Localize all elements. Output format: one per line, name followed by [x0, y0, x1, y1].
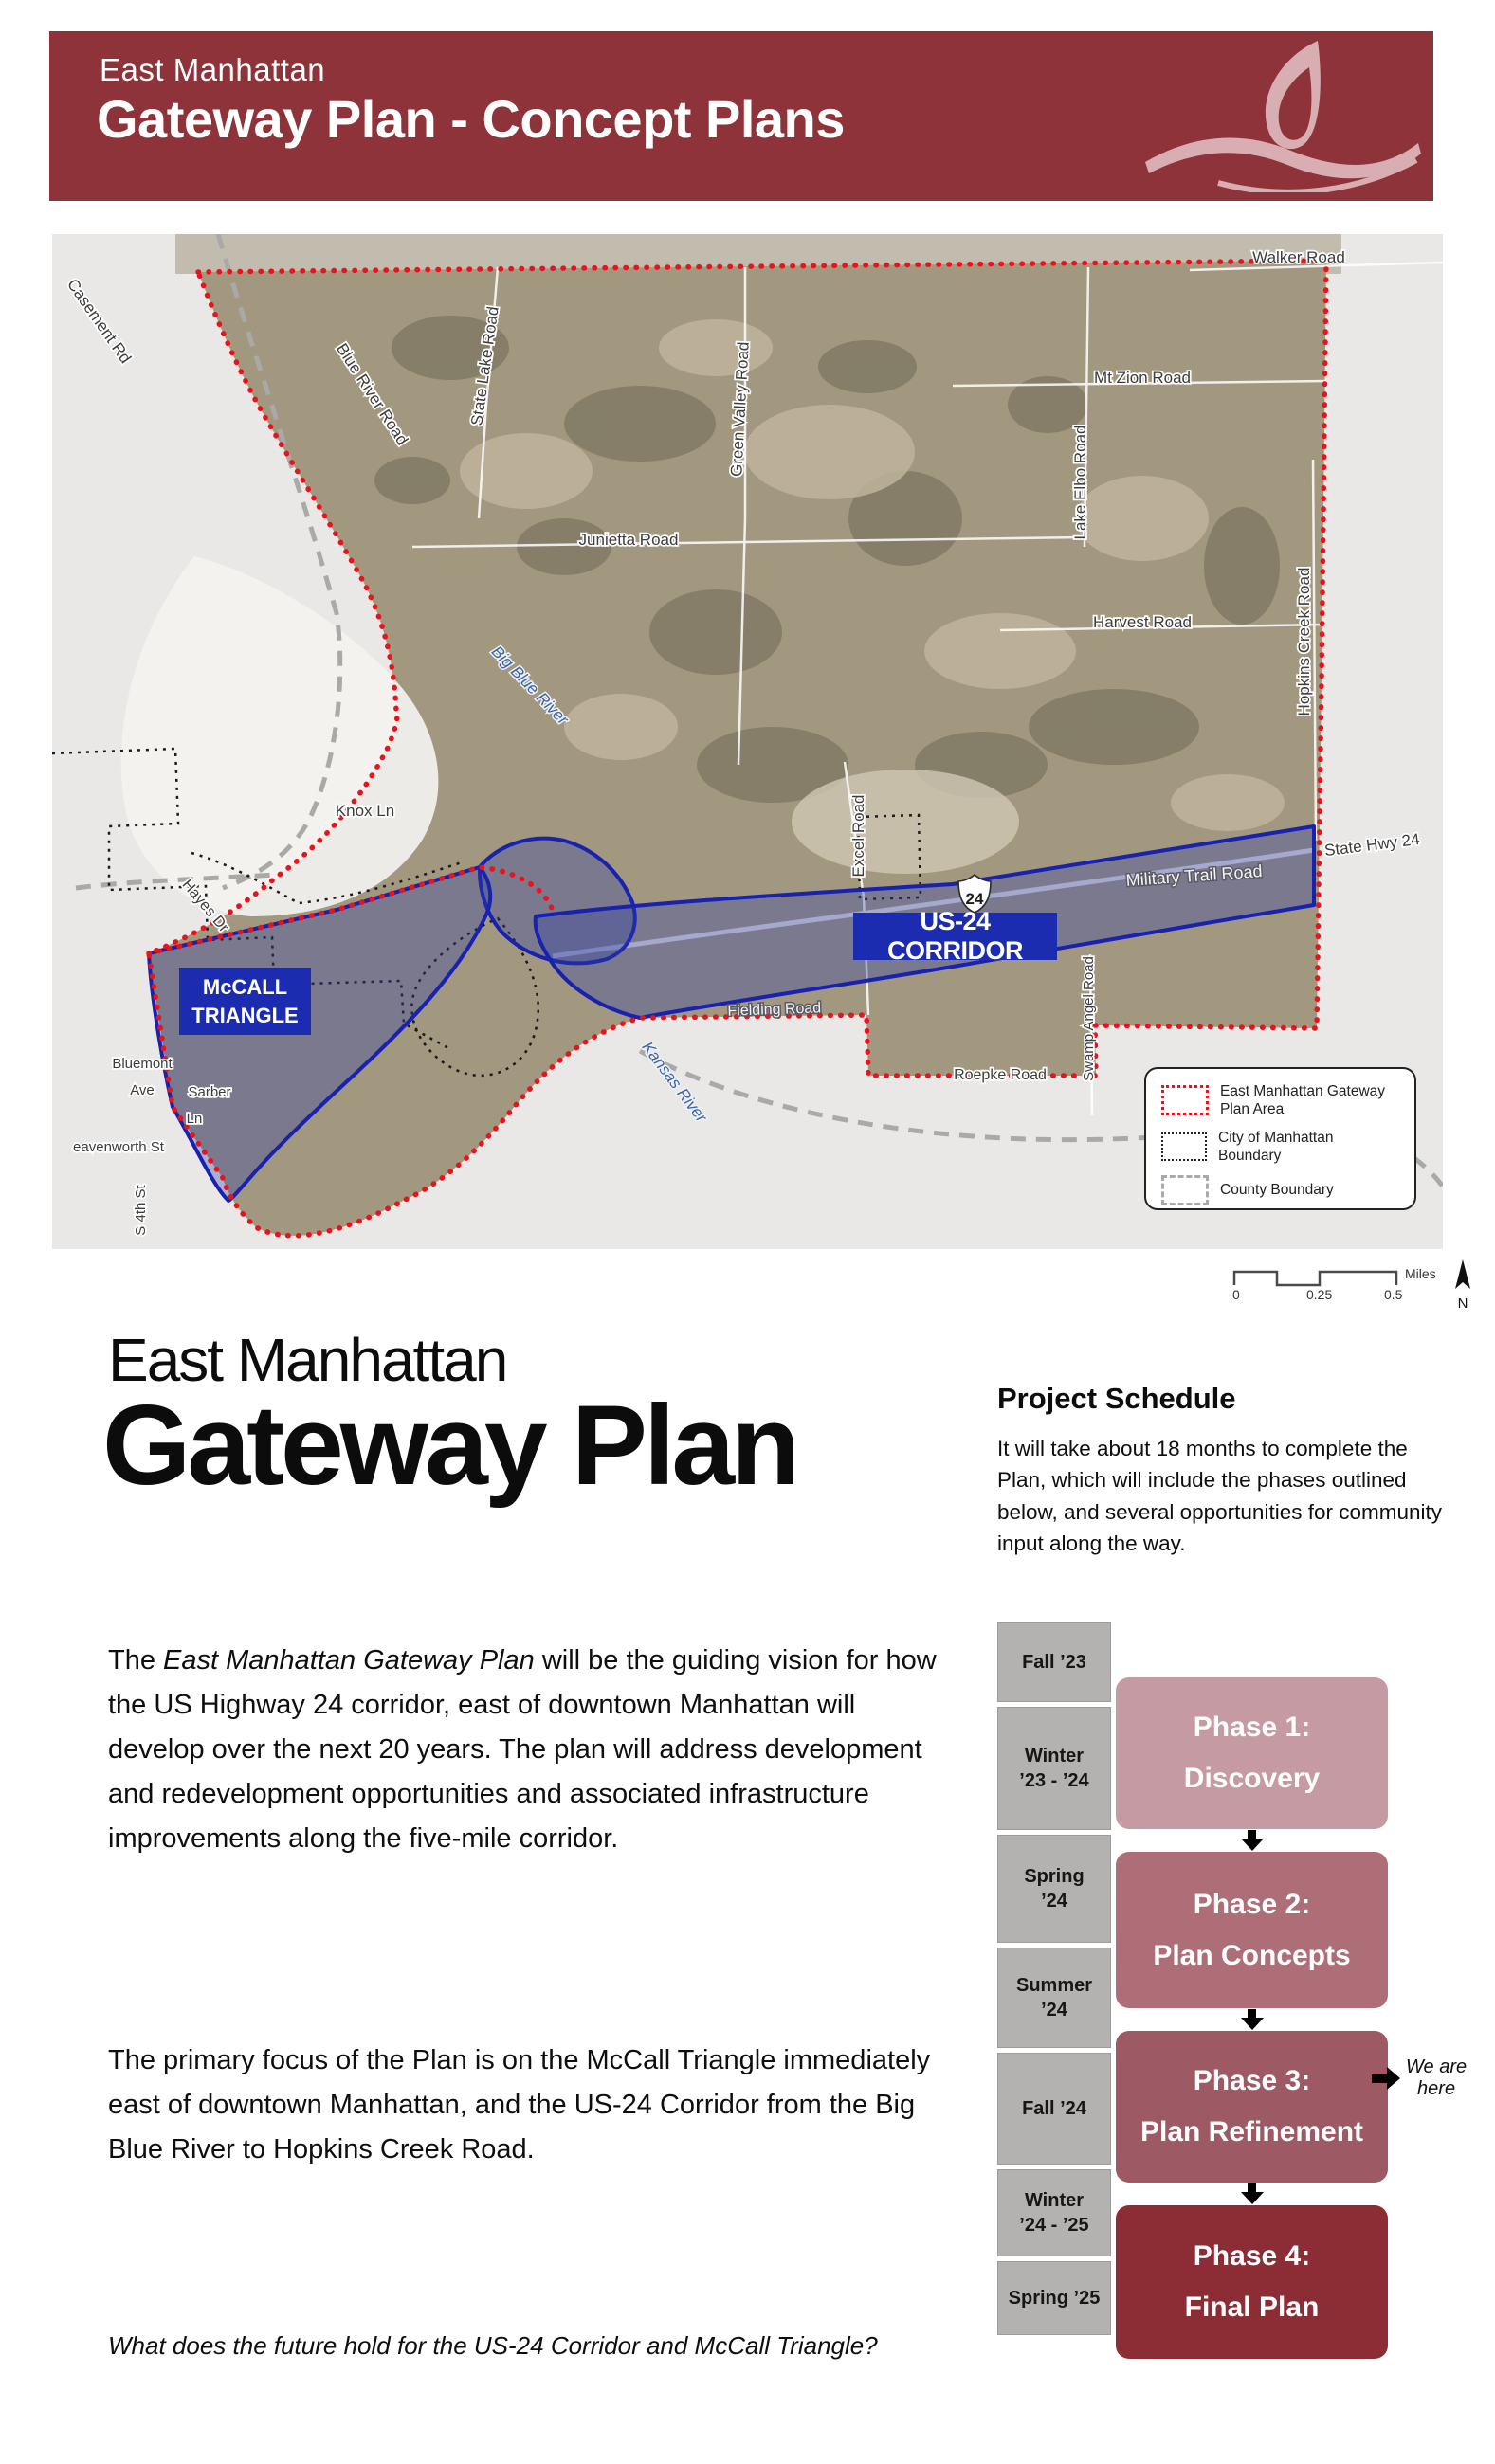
map-label: Excel Road	[849, 795, 867, 878]
schedule-phase-column: Phase 1:DiscoveryPhase 2:Plan ConceptsPh…	[1116, 1677, 1388, 2359]
map-label: Junietta Road	[579, 531, 679, 549]
phase-down-arrow-icon	[1241, 2183, 1264, 2205]
us24-corridor-badge: US-24 CORRIDOR	[853, 913, 1057, 960]
north-arrow-icon: N	[1449, 1259, 1477, 1312]
article-paragraph-2: The primary focus of the Plan is on the …	[108, 2038, 946, 2172]
article-question: What does the future hold for the US-24 …	[108, 2331, 961, 2361]
phase-subtitle: Discovery	[1184, 1753, 1320, 1804]
p1-plan-name: East Manhattan Gateway Plan	[163, 1645, 535, 1676]
article-title-line2: Gateway Plan	[102, 1380, 796, 1511]
map-label: eavenworth St	[73, 1139, 165, 1155]
phase-title: Phase 2:	[1194, 1879, 1310, 1930]
legend-swatch-red-icon	[1161, 1085, 1209, 1115]
schedule-season: Spring ’25	[997, 2261, 1111, 2335]
phase-down-arrow-icon	[1241, 2008, 1264, 2031]
scalebar-tick: 0.25	[1306, 1287, 1332, 1302]
map-label: Knox Ln	[336, 802, 394, 820]
svg-text:24: 24	[966, 890, 984, 908]
schedule-intro: It will take about 18 months to complete…	[997, 1433, 1447, 1559]
legend-swatch-gray-icon	[1161, 1175, 1209, 1205]
map-label: Swamp Angel Road	[1081, 956, 1097, 1081]
map-label: Hopkins Creek Road	[1295, 568, 1313, 716]
map-label: Sarber	[188, 1084, 230, 1100]
poster-page: East Manhattan Gateway Plan - Concept Pl…	[0, 0, 1495, 2464]
phase-subtitle: Plan Refinement	[1140, 2107, 1363, 2158]
schedule-season: Winter ’24 - ’25	[997, 2169, 1111, 2256]
schedule-season: Summer ’24	[997, 1948, 1111, 2048]
north-label: N	[1449, 1295, 1477, 1312]
legend-item: County Boundary	[1161, 1175, 1403, 1205]
we-are-here-arrow-icon	[1372, 2067, 1400, 2090]
schedule-phase: Phase 3:Plan Refinement	[1116, 2031, 1388, 2183]
map-label: Roepke Road	[954, 1067, 1047, 1083]
we-are-here-label: We are here	[1406, 2056, 1467, 2100]
gateway-plan-map[interactable]: 24 Casement RdBlue River RoadState Lake …	[52, 234, 1443, 1249]
schedule-heading: Project Schedule	[997, 1382, 1236, 1416]
schedule-season: Spring ’24	[997, 1835, 1111, 1943]
schedule-season: Winter ’23 - ’24	[997, 1707, 1111, 1830]
p1-pre: The	[108, 1645, 163, 1676]
map-scalebar: 00.250.5 Miles N	[1232, 1262, 1460, 1321]
map-label: Lake Elbo Road	[1071, 426, 1089, 540]
legend-item: City of ManhattanBoundary	[1161, 1129, 1403, 1166]
prairie-leaf-logo-icon	[1138, 39, 1422, 192]
scalebar-tick: 0.5	[1384, 1287, 1402, 1302]
phase-title: Phase 4:	[1194, 2231, 1310, 2282]
schedule-phase: Phase 2:Plan Concepts	[1116, 1852, 1388, 2008]
map-label: Mt Zion Road	[1094, 369, 1191, 387]
schedule-season: Fall ’24	[997, 2053, 1111, 2165]
legend-label: City of ManhattanBoundary	[1218, 1129, 1333, 1166]
map-label: Bluemont	[112, 1056, 173, 1072]
header-banner: East Manhattan Gateway Plan - Concept Pl…	[49, 31, 1433, 201]
schedule-phase: Phase 1:Discovery	[1116, 1677, 1388, 1829]
map-label: Walker Road	[1252, 248, 1345, 266]
map-label: Ave	[130, 1082, 155, 1098]
scalebar-tick: 0	[1232, 1287, 1240, 1302]
map-legend: East Manhattan GatewayPlan AreaCity of M…	[1144, 1067, 1416, 1210]
phase-title: Phase 3:	[1194, 2056, 1310, 2107]
scalebar-unit: Miles	[1405, 1266, 1436, 1281]
schedule-phase: Phase 4:Final Plan	[1116, 2205, 1388, 2359]
map-label: S 4th St	[133, 1184, 149, 1235]
phase-subtitle: Plan Concepts	[1153, 1930, 1350, 1982]
map-label: Ln	[187, 1111, 203, 1127]
schedule-season: Fall ’23	[997, 1622, 1111, 1702]
we-are-here-marker: We are here	[1372, 2056, 1486, 2100]
legend-item: East Manhattan GatewayPlan Area	[1161, 1082, 1403, 1119]
legend-label: East Manhattan GatewayPlan Area	[1220, 1082, 1385, 1119]
legend-label: County Boundary	[1220, 1181, 1334, 1199]
article-paragraph-1: The East Manhattan Gateway Plan will be …	[108, 1639, 946, 1861]
legend-swatch-black-icon	[1161, 1132, 1207, 1161]
header-title: Gateway Plan - Concept Plans	[97, 88, 845, 150]
schedule-season-column: Fall ’23Winter ’23 - ’24Spring ’24Summer…	[997, 1622, 1111, 2340]
map-label: Fielding Road	[727, 1000, 821, 1019]
scalebar-graphic	[1232, 1262, 1399, 1287]
map-label: Harvest Road	[1093, 613, 1192, 631]
mccall-triangle-badge: McCALL TRIANGLE	[179, 968, 311, 1035]
phase-title: Phase 1:	[1194, 1702, 1310, 1753]
phase-subtitle: Final Plan	[1185, 2282, 1320, 2333]
p1-post: will be the guiding vision for how the U…	[108, 1645, 937, 1854]
header-eyebrow: East Manhattan	[100, 52, 325, 88]
phase-down-arrow-icon	[1241, 1829, 1264, 1852]
